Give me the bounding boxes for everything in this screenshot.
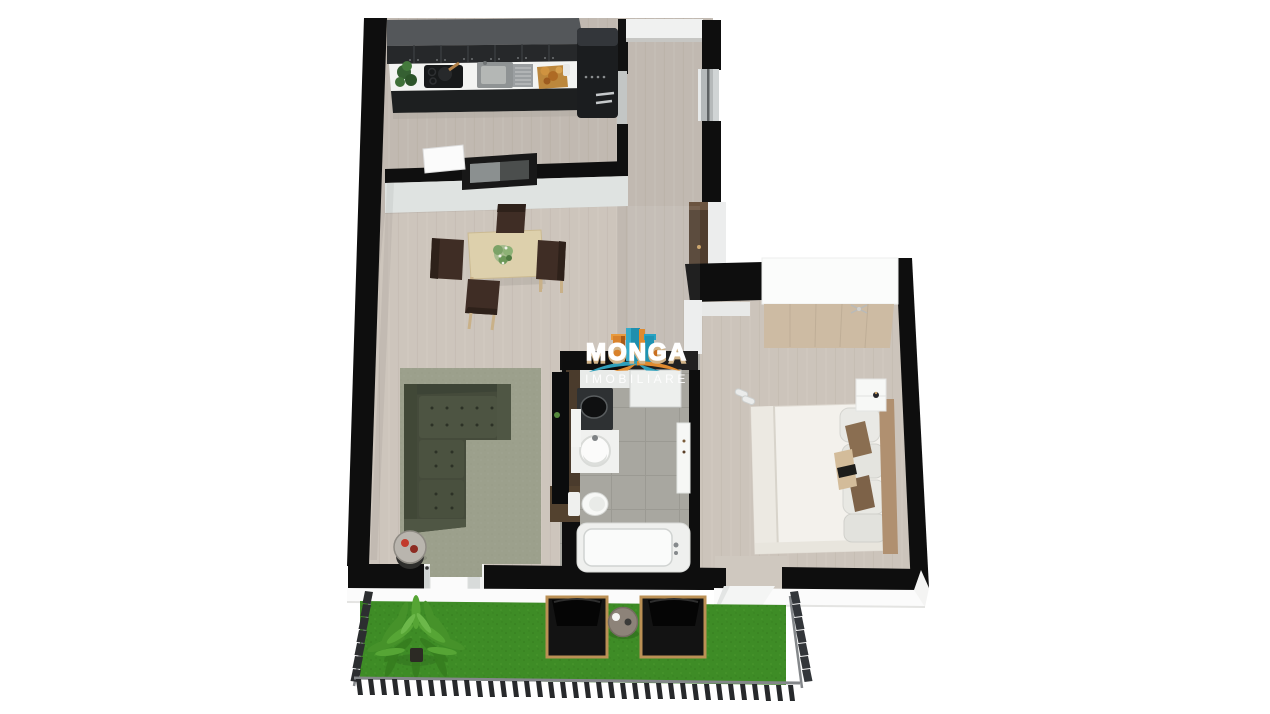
svg-text:MONGA: MONGA: [586, 339, 688, 366]
svg-text:IMOBILIARE: IMOBILIARE: [585, 372, 689, 386]
